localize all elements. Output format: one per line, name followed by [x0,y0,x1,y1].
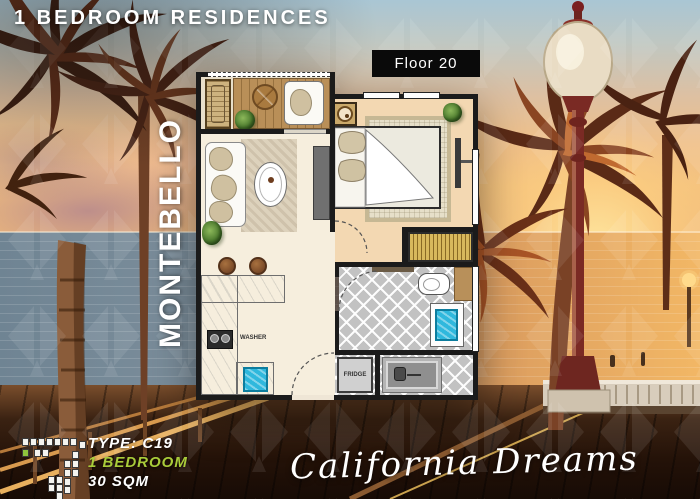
unit-type: TYPE: C19 [88,434,188,453]
poster: WASHER FRIDGE [0,0,700,499]
key-plan-icon [22,438,92,496]
floor-badge-label: Floor 20 [394,55,457,72]
door-swing-arcs [196,63,482,400]
floor-badge: Floor 20 [372,50,480,77]
page-title: 1 BEDROOM RESIDENCES [14,7,331,30]
unit-info: TYPE: C19 1 BEDROOM 30 SQM [88,434,188,491]
floor-plan: WASHER FRIDGE [196,63,482,400]
key-plan-highlighted-unit [22,449,29,457]
tower-name: MONTEBELLO [154,126,196,348]
unit-bedrooms: 1 BEDROOM [88,453,188,472]
unit-area: 30 SQM [88,472,188,491]
